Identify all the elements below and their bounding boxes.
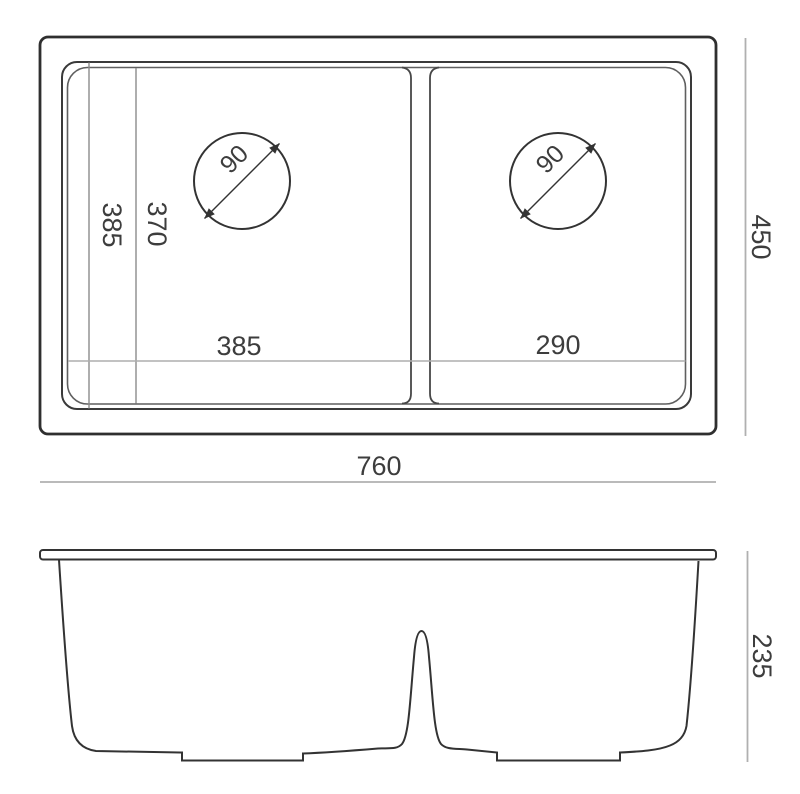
left-drain-diameter-label: 90 — [215, 140, 254, 179]
right-bowl-width-label: 290 — [535, 330, 580, 360]
overall-depth-label: 450 — [746, 214, 776, 259]
front-bowl-profile — [59, 560, 699, 761]
bowl-height-dimension: 235 — [747, 551, 777, 762]
sink-technical-drawing: 90 90 385 370 385 290 450 760 — [0, 0, 800, 794]
bowl-height-label: 235 — [747, 633, 777, 678]
sink-drawing-page: 90 90 385 370 385 290 450 760 — [0, 0, 800, 794]
bowl-depth-outer-label: 385 — [97, 202, 127, 247]
top-view: 90 90 385 370 385 290 — [40, 37, 716, 434]
right-drain-diameter-label: 90 — [531, 140, 570, 179]
overall-width-label: 760 — [356, 451, 401, 481]
left-bowl-width-label: 385 — [216, 331, 261, 361]
bowl-divider — [402, 68, 439, 404]
front-view — [40, 550, 716, 761]
overall-width-dimension: 760 — [40, 451, 716, 482]
overall-depth-dimension: 450 — [746, 38, 777, 436]
front-rim — [40, 550, 716, 560]
bowl-depth-inner-label: 370 — [142, 201, 172, 246]
sink-outer-edge — [40, 37, 716, 434]
